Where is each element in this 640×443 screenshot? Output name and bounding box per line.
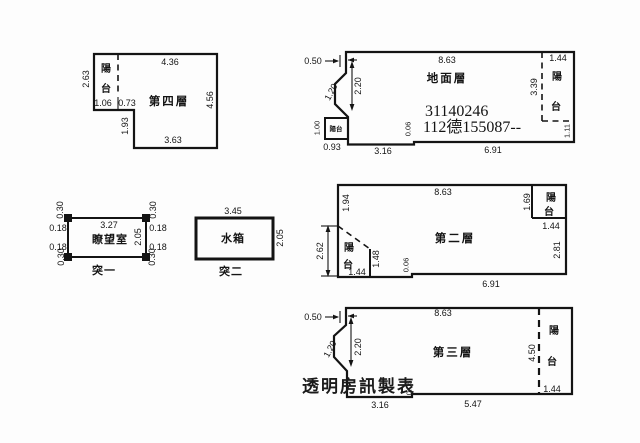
- ground-dim-top: 8.63: [438, 55, 456, 65]
- tank-dim-top: 3.45: [224, 206, 242, 216]
- floor2-label: 第二層: [435, 231, 476, 245]
- floor3-dim-bottom-left: 3.16: [371, 400, 389, 410]
- floor3-balcony-char2: 台: [547, 355, 557, 368]
- ground-dim-bottom-right: 6.91: [484, 145, 502, 155]
- floor2-plan: 8.63 1.94 第二層 陽 台 1.69 1.44 2.81 2.62 陽 …: [315, 185, 566, 289]
- ground-inner-arrow-down: [350, 104, 355, 111]
- floor4-dim-balcony-to-step: 0.73: [118, 98, 136, 108]
- floor3-dim-bottom-right: 5.47: [464, 399, 482, 409]
- ground-dim-small-balcony-height: 1.00: [313, 121, 322, 136]
- floor4-dim-balcony-width: 1.06: [94, 98, 112, 108]
- lookout-dim-top: 3.27: [100, 220, 118, 230]
- lookout-corner-bl-v: 0.30: [56, 248, 66, 266]
- ground-dim-inner-height: 2.20: [353, 77, 363, 95]
- floor2-dim-balcony-tr-width: 1.44: [542, 221, 560, 231]
- floor2-dim-top: 8.63: [434, 187, 452, 197]
- floor3-dim-offset: 0.50: [304, 312, 322, 322]
- floor2-balcony-tr-char1: 陽: [546, 192, 556, 204]
- ground-dim-slant: 1.20: [322, 82, 339, 102]
- ground-stamp-line2: 112德155087--: [423, 118, 521, 136]
- floor-plan-diagram: 4.36 2.63 陽 台 1.06 0.73 第四層 4.56 1.93 3.…: [0, 0, 640, 443]
- floor2-balcony-bl-diagonal: [338, 226, 370, 249]
- lookout-caption: 突一: [92, 263, 116, 277]
- floor2-dim-jog: 0.06: [402, 258, 411, 273]
- floor3-inner-arrow-down: [349, 360, 354, 367]
- lookout-dim-height: 2.05: [133, 228, 143, 246]
- floor2-balcony-tr-char2: 台: [544, 205, 554, 218]
- lookout-corner-tl-v: 0.30: [55, 201, 65, 219]
- ground-floor-plan: 0.50 8.63 地面層 1.44 3.39 陽 台 1.11 1.20 2.…: [304, 52, 574, 156]
- tank-plan: 3.45 水箱 2.05 突二: [196, 206, 285, 278]
- lookout-corner-br-v: 0.30: [147, 248, 157, 266]
- ground-dim-bottom-left: 3.16: [374, 146, 392, 156]
- floor2-balcony-bl-char1: 陽: [344, 242, 354, 254]
- floor2-dim-balcony-tr-height: 1.69: [522, 193, 532, 211]
- floor3-offset-arrowhead: [333, 315, 339, 320]
- ground-dim-balcony-right-width: 1.44: [549, 53, 567, 63]
- floor4-dim-top: 4.36: [161, 57, 179, 67]
- watermark-text: 透明房訊製表: [302, 376, 416, 396]
- floor3-dim-balcony-height: 4.50: [527, 344, 537, 362]
- lookout-corner-tr-v: 0.30: [148, 201, 158, 219]
- ground-dim-offset: 0.50: [304, 56, 322, 66]
- floor4-plan: 4.36 2.63 陽 台 1.06 0.73 第四層 4.56 1.93 3.…: [81, 54, 217, 148]
- ground-dim-small-balcony-width: 0.93: [323, 142, 341, 152]
- ground-dim-balcony-right-bottom: 1.11: [563, 124, 572, 138]
- floor2-dim-balcony-bl-width: 1.44: [348, 267, 366, 277]
- floor4-balcony-char1: 陽: [101, 63, 111, 75]
- lookout-column-tl: [64, 214, 72, 222]
- lookout-plan: 3.27 瞭望室 2.05 0.30 0.18 0.18 0.30 0.30 0…: [49, 201, 167, 277]
- floor4-dim-step: 1.93: [120, 117, 130, 135]
- floor3-dim-top: 8.63: [434, 308, 452, 318]
- ground-small-balcony-label: 陽台: [330, 124, 344, 133]
- lookout-corner-tl-h: 0.18: [49, 223, 67, 233]
- floor3-dim-balcony-width: 1.44: [543, 384, 561, 394]
- floor2-dim-balcony-bl-span: 2.62: [315, 242, 325, 260]
- floor3-dim-slant: 1.20: [321, 339, 338, 359]
- ground-dim-jog: 0.06: [404, 122, 413, 137]
- floor4-dim-bottom: 3.63: [164, 135, 182, 145]
- ground-label: 地面層: [427, 71, 468, 85]
- floor2-dim-bottom: 6.91: [482, 279, 500, 289]
- ground-offset-arrowhead: [333, 59, 339, 64]
- floor4-dim-right: 4.56: [205, 91, 215, 109]
- tank-dim-height: 2.05: [275, 229, 285, 247]
- floor3-dim-inner-height: 2.20: [353, 338, 363, 356]
- ground-dim-balcony-right-height: 3.39: [529, 78, 539, 96]
- floor2-dim-right: 2.81: [552, 241, 562, 259]
- floor4-label: 第四層: [149, 94, 190, 108]
- floor3-label: 第三層: [433, 345, 474, 359]
- ground-balcony-right-char1: 陽: [552, 71, 562, 83]
- tank-label: 水箱: [221, 231, 245, 245]
- floor3-balcony-char1: 陽: [549, 325, 559, 337]
- floor4-balcony-char2: 台: [101, 82, 111, 95]
- lookout-corner-tr-h: 0.18: [149, 223, 167, 233]
- survey-drawing: 4.36 2.63 陽 台 1.06 0.73 第四層 4.56 1.93 3.…: [0, 0, 640, 443]
- floor4-dim-left: 2.63: [81, 70, 91, 88]
- ground-balcony-right-char2: 台: [551, 100, 561, 113]
- lookout-label: 瞭望室: [92, 232, 128, 246]
- tank-caption: 突二: [219, 264, 243, 278]
- ground-corner-arrowhead: [348, 58, 354, 63]
- floor2-dim-left-upper: 1.94: [341, 194, 351, 212]
- floor2-dim-balcony-bl-height: 1.48: [371, 250, 381, 268]
- ground-stamp-line1: 31140246: [425, 103, 488, 120]
- floor3-inner-arrow-up: [349, 317, 354, 324]
